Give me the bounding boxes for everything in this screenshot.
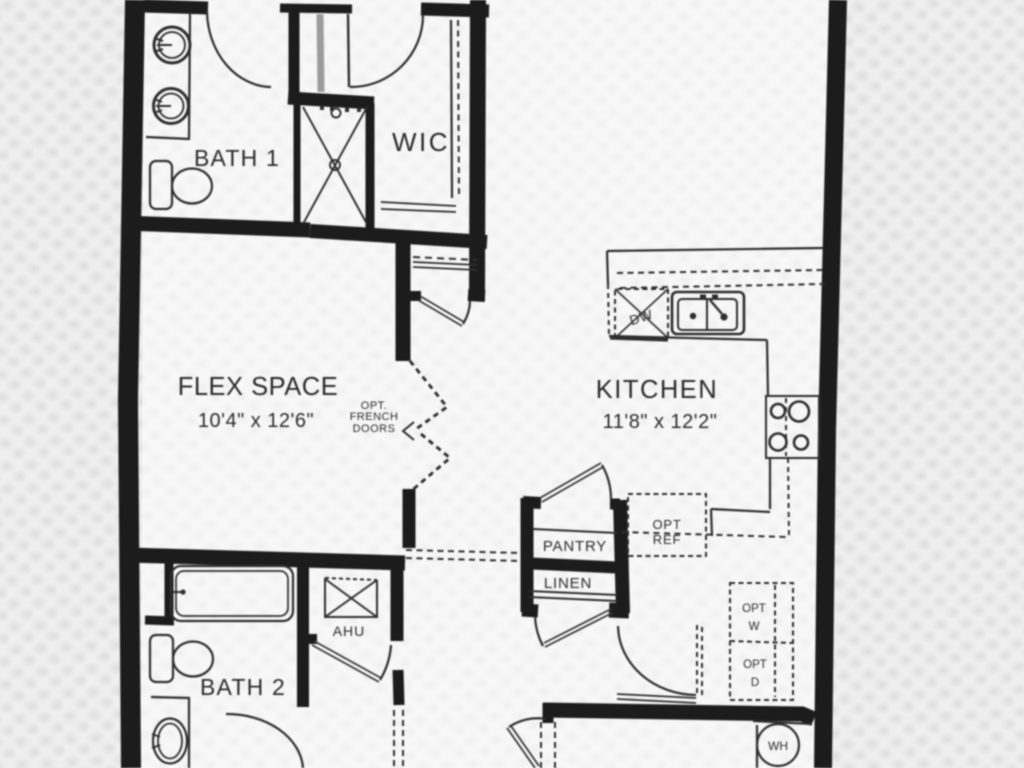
svg-text:KITCHEN: KITCHEN: [596, 376, 718, 404]
svg-text:WH: WH: [768, 739, 788, 753]
svg-text:DOORS: DOORS: [353, 423, 396, 435]
svg-text:OPT: OPT: [652, 517, 681, 532]
svg-text:FLEX SPACE: FLEX SPACE: [178, 373, 338, 401]
svg-text:OPT: OPT: [743, 659, 767, 671]
svg-text:11'8" x 12'2": 11'8" x 12'2": [603, 411, 718, 433]
svg-text:REF: REF: [653, 532, 681, 547]
svg-text:D: D: [751, 677, 759, 689]
svg-text:W: W: [749, 621, 760, 633]
svg-text:OPT: OPT: [742, 603, 766, 615]
svg-text:PANTRY: PANTRY: [543, 538, 607, 555]
svg-text:BATH 2: BATH 2: [200, 674, 286, 700]
svg-text:FRENCH: FRENCH: [350, 411, 399, 423]
svg-text:BATH 1: BATH 1: [194, 145, 280, 171]
svg-text:10'4" x 12'6": 10'4" x 12'6": [198, 410, 314, 432]
svg-text:WIC: WIC: [392, 127, 450, 157]
svg-text:LINEN: LINEN: [544, 575, 592, 592]
svg-text:AHU: AHU: [333, 623, 366, 639]
